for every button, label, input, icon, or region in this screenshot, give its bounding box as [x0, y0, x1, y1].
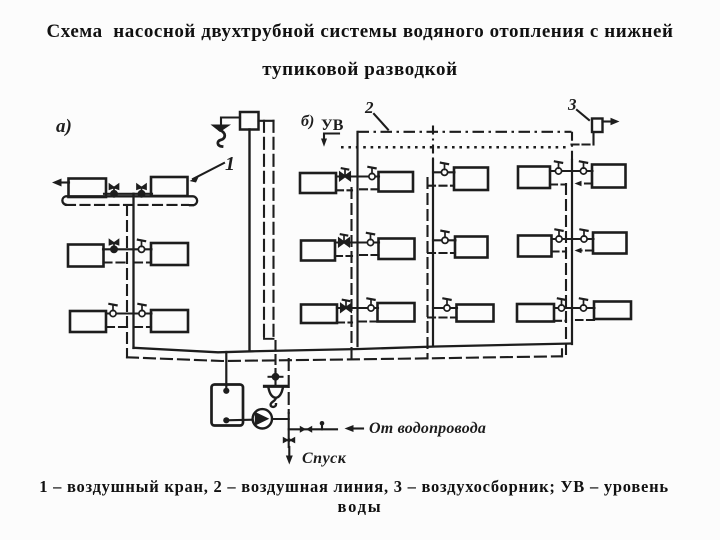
svg-text:3: 3: [567, 95, 577, 114]
svg-text:УВ: УВ: [321, 117, 344, 134]
svg-text:а): а): [56, 116, 72, 137]
svg-text:Спуск: Спуск: [302, 450, 347, 467]
svg-text:2: 2: [364, 98, 374, 117]
svg-text:1: 1: [225, 153, 235, 175]
svg-text:б): б): [301, 113, 314, 130]
svg-text:От водопровода: От водопровода: [369, 420, 486, 437]
